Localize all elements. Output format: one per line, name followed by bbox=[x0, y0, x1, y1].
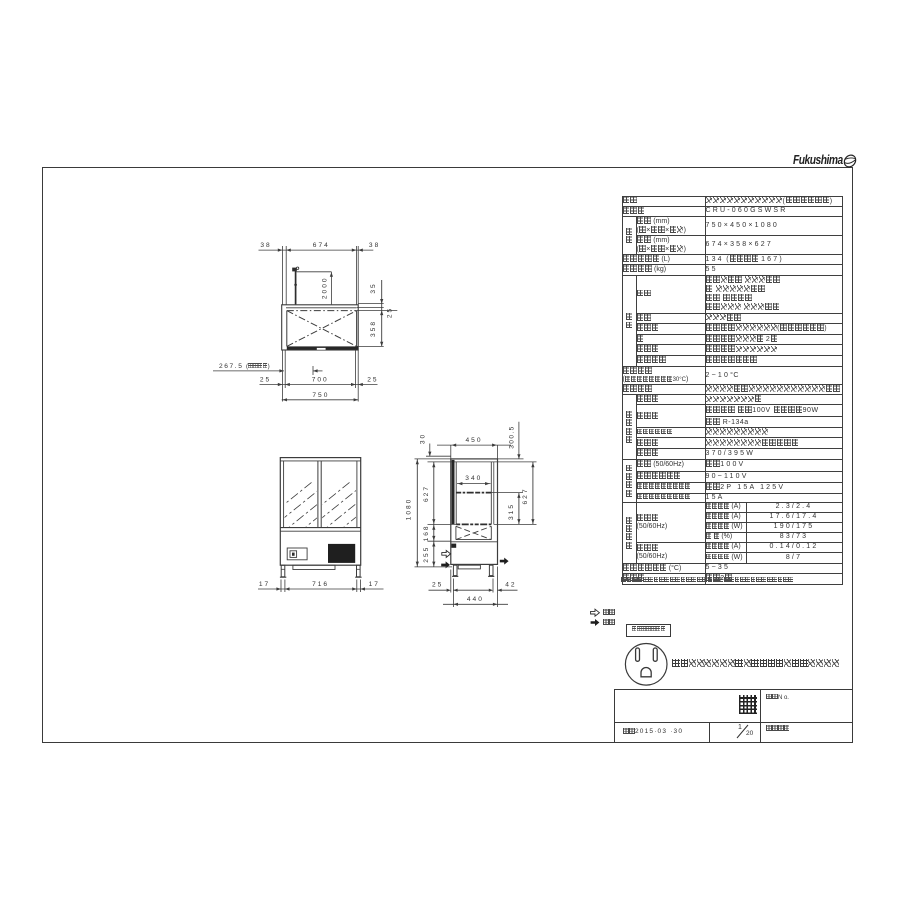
svg-text:25: 25 bbox=[260, 376, 271, 383]
svg-text:627: 627 bbox=[522, 487, 529, 504]
svg-text:30: 30 bbox=[420, 433, 427, 444]
svg-text:168: 168 bbox=[423, 524, 430, 541]
svg-text:2000: 2000 bbox=[321, 276, 328, 299]
svg-text:716: 716 bbox=[312, 581, 329, 588]
svg-text:315: 315 bbox=[508, 503, 515, 520]
svg-text:340: 340 bbox=[465, 475, 482, 482]
svg-text:42: 42 bbox=[505, 582, 516, 589]
svg-text:267.5: 267.5 bbox=[219, 363, 244, 370]
svg-text:627: 627 bbox=[423, 485, 430, 502]
svg-text:255: 255 bbox=[423, 546, 430, 563]
svg-text:1080: 1080 bbox=[405, 498, 412, 521]
svg-text:38: 38 bbox=[369, 242, 380, 249]
svg-text:17: 17 bbox=[369, 581, 380, 588]
svg-text:35: 35 bbox=[370, 282, 377, 293]
svg-text:750: 750 bbox=[312, 392, 329, 399]
svg-text:38: 38 bbox=[260, 242, 271, 249]
svg-text:450: 450 bbox=[465, 437, 482, 444]
svg-text:674: 674 bbox=[313, 242, 330, 249]
svg-text:358: 358 bbox=[370, 320, 377, 337]
svg-text:17: 17 bbox=[259, 581, 270, 588]
svg-text:300.5: 300.5 bbox=[508, 425, 515, 449]
svg-text:440: 440 bbox=[467, 596, 484, 603]
svg-text:25: 25 bbox=[367, 376, 378, 383]
svg-text:700: 700 bbox=[312, 376, 329, 383]
svg-text:25: 25 bbox=[387, 307, 394, 318]
svg-text:25: 25 bbox=[432, 582, 443, 589]
